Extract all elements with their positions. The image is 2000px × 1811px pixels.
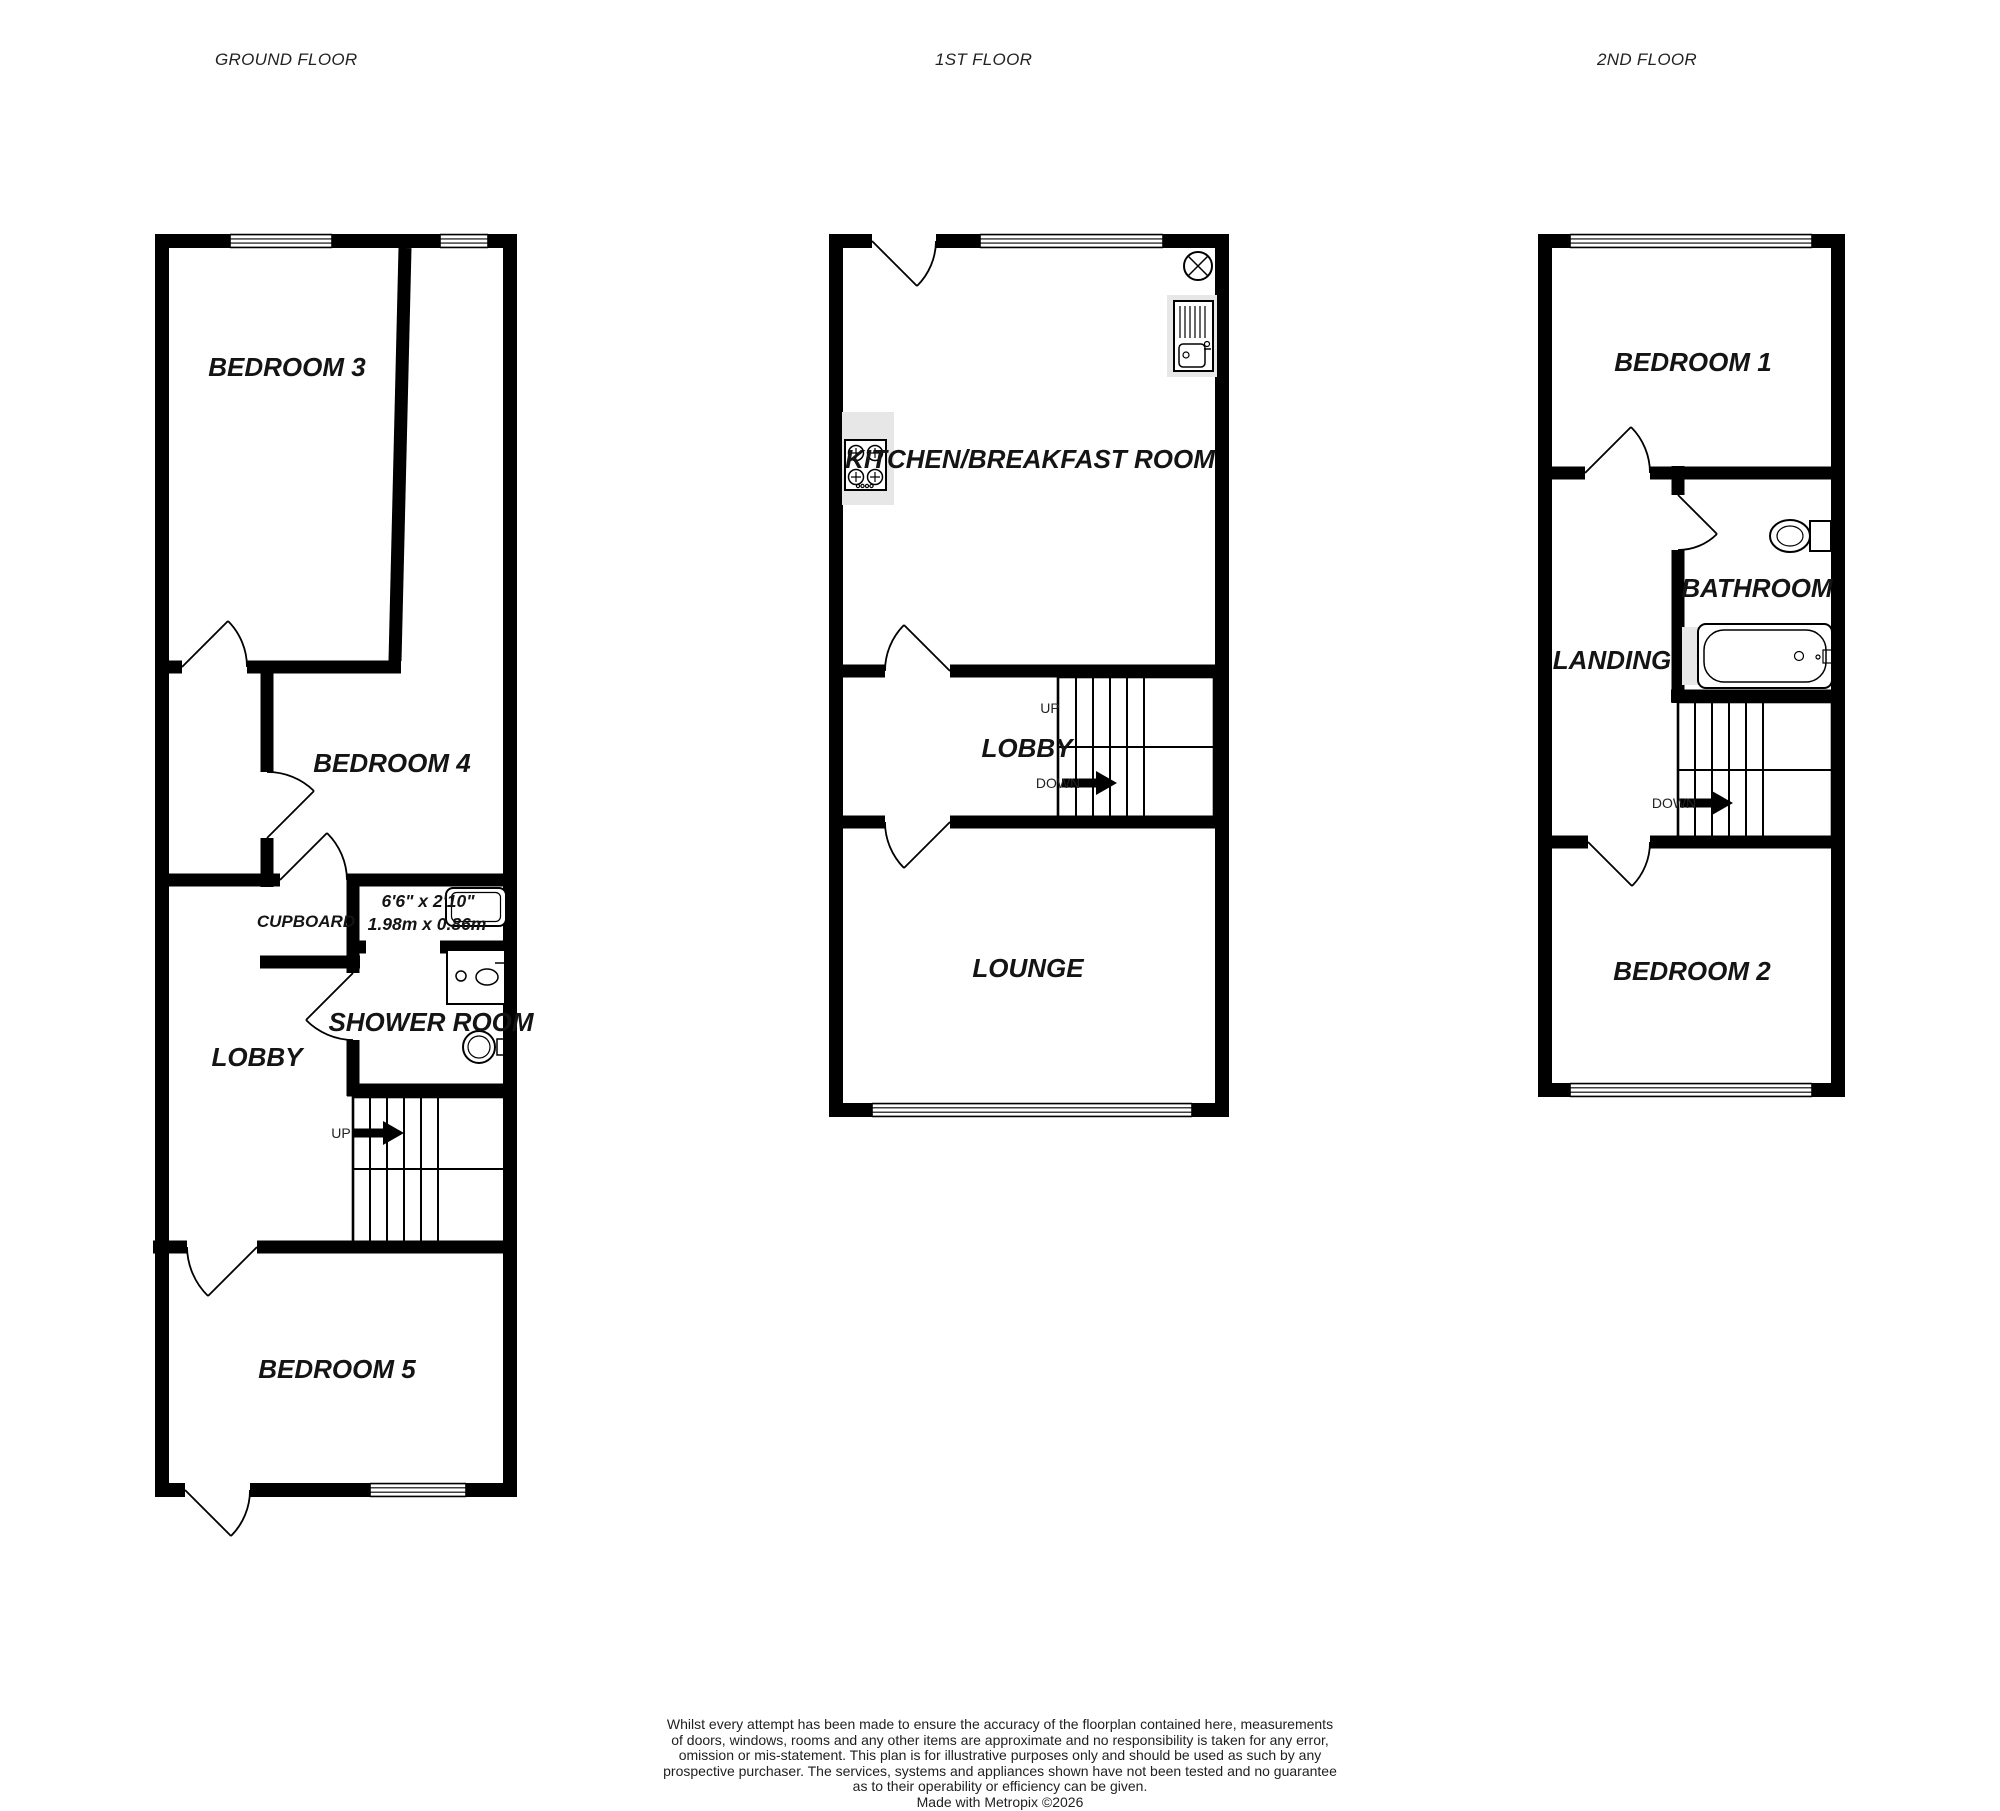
door-arc: [187, 1247, 257, 1296]
disclaimer-line: as to their operability or efficiency ca…: [0, 1779, 2000, 1795]
window: [440, 234, 488, 249]
window: [1570, 1083, 1812, 1098]
stairs-up-down: [1058, 677, 1214, 817]
shower-dimensions-metric: 1.98m x 0.86m: [368, 914, 487, 934]
room-label-shower-room: SHOWER ROOM: [328, 1007, 534, 1037]
toilet-icon: [1770, 520, 1831, 552]
room-label-bedroom-1: BEDROOM 1: [1614, 347, 1771, 377]
kitchen-sink-icon: [1167, 295, 1217, 377]
room-label-bedroom-3: BEDROOM 3: [208, 352, 366, 382]
first-floor-plan: KITCHEN/BREAKFAST ROOM UP LOBBY DOWN LOU…: [836, 234, 1222, 1118]
stairs-down: [1678, 702, 1832, 838]
window: [370, 1483, 466, 1498]
door-arc: [1585, 427, 1650, 473]
room-label-bedroom-4: BEDROOM 4: [313, 748, 471, 778]
stairs-down-label: DOWN: [1652, 795, 1696, 811]
room-label-bedroom-2: BEDROOM 2: [1613, 956, 1771, 986]
room-label-lobby-first: LOBBY: [982, 733, 1076, 763]
disclaimer-line: of doors, windows, rooms and any other i…: [0, 1733, 2000, 1749]
disclaimer-line: omission or mis-statement. This plan is …: [0, 1748, 2000, 1764]
floorplan-page: GROUND FLOOR 1ST FLOOR 2ND FLOOR: [0, 0, 2000, 1811]
stairs-up-label: UP: [1040, 700, 1059, 716]
disclaimer-line: prospective purchaser. The services, sys…: [0, 1764, 2000, 1780]
up-arrow: [352, 1121, 404, 1145]
entrance-door: [872, 234, 936, 287]
room-label-lobby-ground: LOBBY: [212, 1042, 306, 1072]
room-label-kitchen: KITCHEN/BREAKFAST ROOM: [845, 444, 1216, 474]
stairs-up: [352, 1097, 510, 1242]
disclaimer: Whilst every attempt has been made to en…: [0, 1717, 2000, 1811]
door-arc: [885, 822, 950, 868]
door-arc: [885, 625, 950, 671]
door-arc: [1678, 495, 1717, 550]
second-floor-plan: BEDROOM 1 BATHROOM LANDING DOWN BEDROOM …: [1545, 234, 1838, 1098]
room-label-landing: LANDING: [1553, 645, 1671, 675]
outer-walls: [162, 241, 510, 1490]
credit-line: Made with Metropix ©2026: [0, 1795, 2000, 1811]
stairs-down-label: DOWN: [1036, 775, 1080, 791]
door-arc: [182, 621, 247, 667]
window: [980, 234, 1163, 249]
ceiling-light-icon: [1184, 252, 1212, 280]
room-label-cupboard: CUPBOARD: [257, 912, 355, 931]
bath-icon: [1682, 624, 1832, 688]
sink-icon: [447, 950, 505, 1004]
room-label-bedroom-5: BEDROOM 5: [258, 1354, 416, 1384]
window: [872, 1103, 1192, 1118]
window: [230, 234, 332, 249]
shower-dimensions-imperial: 6'6" x 2'10": [381, 891, 475, 911]
exterior-door: [185, 1483, 250, 1537]
room-label-bathroom: BATHROOM: [1681, 573, 1834, 603]
door-arc: [1588, 842, 1650, 886]
room-label-lounge: LOUNGE: [972, 953, 1084, 983]
ground-floor-plan: BEDROOM 3 BEDROOM 4 CUPBOARD 6'6" x 2'10…: [153, 234, 535, 1537]
floorplan-drawing: BEDROOM 3 BEDROOM 4 CUPBOARD 6'6" x 2'10…: [0, 0, 2000, 1811]
door-arc: [267, 772, 314, 838]
disclaimer-line: Whilst every attempt has been made to en…: [0, 1717, 2000, 1733]
door-arc: [280, 833, 347, 880]
stairs-up-label: UP: [331, 1125, 350, 1141]
window: [1570, 234, 1812, 249]
